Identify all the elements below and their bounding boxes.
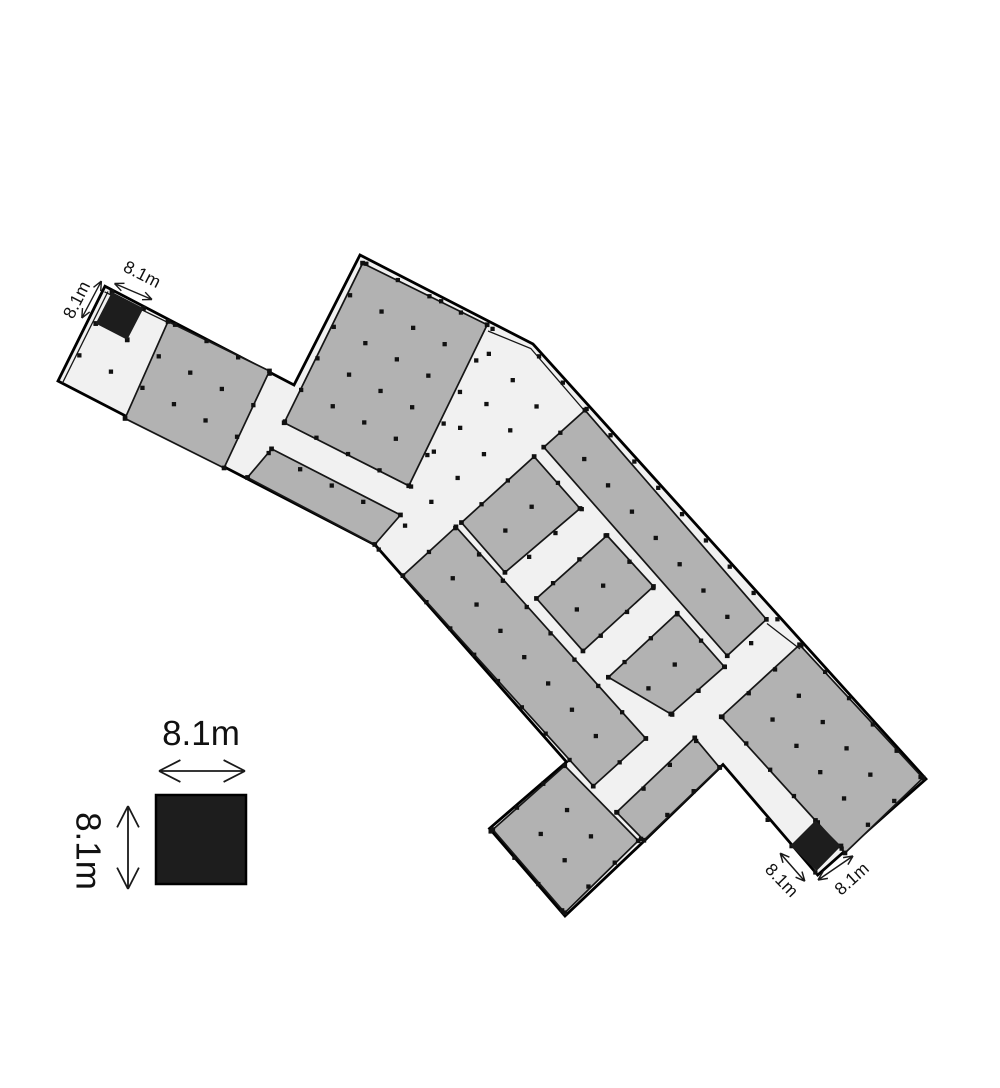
svg-text:8.1m: 8.1m — [162, 714, 240, 753]
svg-text:8.1m: 8.1m — [69, 812, 108, 890]
